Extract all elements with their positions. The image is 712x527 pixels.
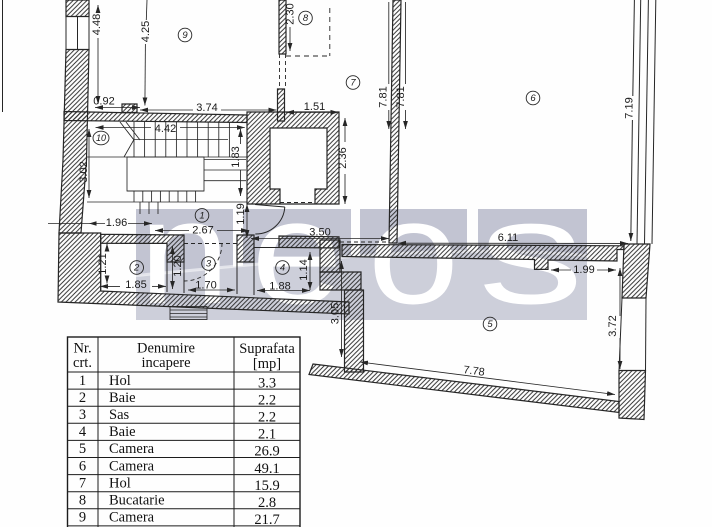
svg-text:1.14: 1.14 bbox=[298, 259, 310, 280]
svg-text:Sas: Sas bbox=[109, 407, 130, 423]
svg-text:26.9: 26.9 bbox=[254, 444, 279, 460]
svg-text:6.11: 6.11 bbox=[498, 232, 519, 244]
svg-text:8: 8 bbox=[303, 13, 309, 24]
svg-text:1: 1 bbox=[79, 373, 86, 389]
svg-text:7.81: 7.81 bbox=[377, 86, 389, 107]
svg-text:7.81: 7.81 bbox=[395, 86, 407, 107]
svg-text:1.99: 1.99 bbox=[573, 264, 594, 276]
svg-text:1.85: 1.85 bbox=[125, 279, 146, 291]
svg-text:2: 2 bbox=[133, 263, 140, 274]
svg-text:4.25: 4.25 bbox=[140, 21, 152, 42]
svg-text:5: 5 bbox=[487, 319, 493, 330]
svg-text:2.30: 2.30 bbox=[284, 3, 296, 24]
svg-text:4: 4 bbox=[79, 424, 87, 440]
svg-text:9: 9 bbox=[79, 510, 86, 526]
svg-text:4: 4 bbox=[280, 263, 285, 274]
svg-text:3: 3 bbox=[206, 259, 212, 270]
svg-text:2.36: 2.36 bbox=[337, 147, 349, 168]
svg-text:Camera: Camera bbox=[109, 441, 155, 457]
svg-text:Camera: Camera bbox=[109, 458, 155, 474]
svg-text:2.8: 2.8 bbox=[258, 495, 276, 511]
svg-text:2.1: 2.1 bbox=[258, 427, 276, 443]
svg-text:6: 6 bbox=[530, 93, 536, 104]
svg-text:15.9: 15.9 bbox=[254, 478, 279, 494]
svg-text:4.48: 4.48 bbox=[91, 14, 103, 35]
svg-text:3.74: 3.74 bbox=[196, 102, 217, 114]
svg-text:1.20: 1.20 bbox=[172, 255, 184, 276]
svg-text:0.92: 0.92 bbox=[93, 95, 114, 107]
svg-text:8: 8 bbox=[79, 493, 86, 509]
svg-text:1.21: 1.21 bbox=[97, 253, 109, 274]
svg-text:3.02: 3.02 bbox=[78, 161, 90, 182]
svg-text:2.2: 2.2 bbox=[258, 392, 276, 408]
svg-text:incapere: incapere bbox=[141, 355, 190, 371]
svg-text:Baie: Baie bbox=[109, 424, 136, 440]
svg-text:Baie: Baie bbox=[109, 390, 136, 406]
svg-text:7: 7 bbox=[350, 78, 356, 89]
svg-text:4.42: 4.42 bbox=[155, 123, 176, 135]
svg-text:3.72: 3.72 bbox=[607, 315, 619, 336]
svg-text:9: 9 bbox=[182, 30, 188, 41]
svg-text:crt.: crt. bbox=[73, 355, 92, 371]
svg-text:5: 5 bbox=[79, 441, 86, 457]
svg-text:49.1: 49.1 bbox=[254, 461, 279, 477]
svg-text:3.05: 3.05 bbox=[329, 303, 341, 324]
svg-text:Suprafata: Suprafata bbox=[239, 341, 295, 357]
svg-text:1.83: 1.83 bbox=[230, 146, 242, 167]
svg-text:2: 2 bbox=[79, 390, 86, 406]
svg-text:2.67: 2.67 bbox=[192, 224, 213, 236]
svg-text:7.19: 7.19 bbox=[623, 97, 635, 118]
svg-text:Hol: Hol bbox=[109, 373, 131, 389]
svg-text:[mp]: [mp] bbox=[253, 356, 281, 372]
svg-text:Bucatarie: Bucatarie bbox=[109, 493, 165, 509]
svg-text:1.19: 1.19 bbox=[235, 203, 247, 224]
svg-text:3.3: 3.3 bbox=[258, 375, 276, 391]
svg-text:21.7: 21.7 bbox=[254, 512, 279, 527]
svg-text:10: 10 bbox=[96, 133, 106, 143]
svg-text:6: 6 bbox=[79, 458, 86, 474]
svg-text:3: 3 bbox=[79, 407, 86, 423]
svg-text:Hol: Hol bbox=[109, 475, 131, 491]
svg-text:2.2: 2.2 bbox=[258, 410, 276, 426]
svg-text:Camera: Camera bbox=[109, 510, 155, 526]
svg-text:1: 1 bbox=[199, 211, 204, 222]
svg-text:1.51: 1.51 bbox=[304, 101, 325, 113]
svg-text:3.50: 3.50 bbox=[309, 226, 330, 238]
svg-text:7: 7 bbox=[79, 475, 86, 491]
svg-text:1.96: 1.96 bbox=[106, 217, 127, 229]
